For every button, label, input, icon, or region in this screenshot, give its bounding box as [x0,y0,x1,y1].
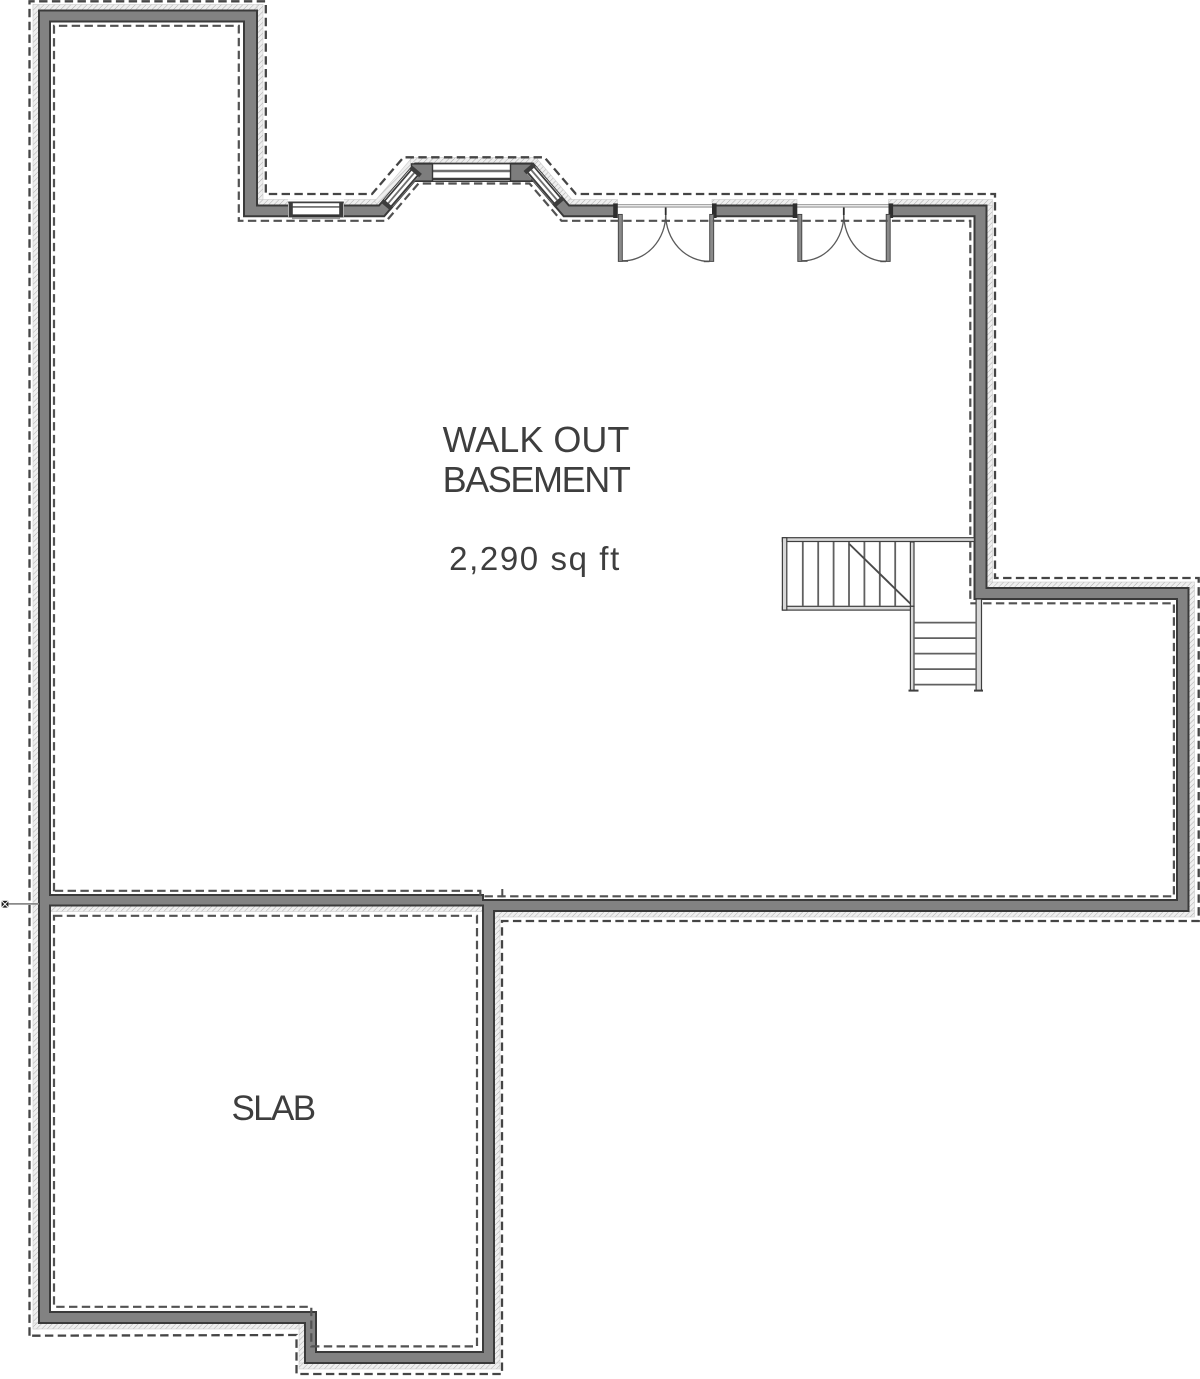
svg-text:SLAB: SLAB [231,1089,314,1128]
svg-text:BASEMENT: BASEMENT [443,459,631,500]
svg-text:WALK OUT: WALK OUT [443,419,630,460]
svg-text:2,290 sq ft: 2,290 sq ft [449,540,621,577]
